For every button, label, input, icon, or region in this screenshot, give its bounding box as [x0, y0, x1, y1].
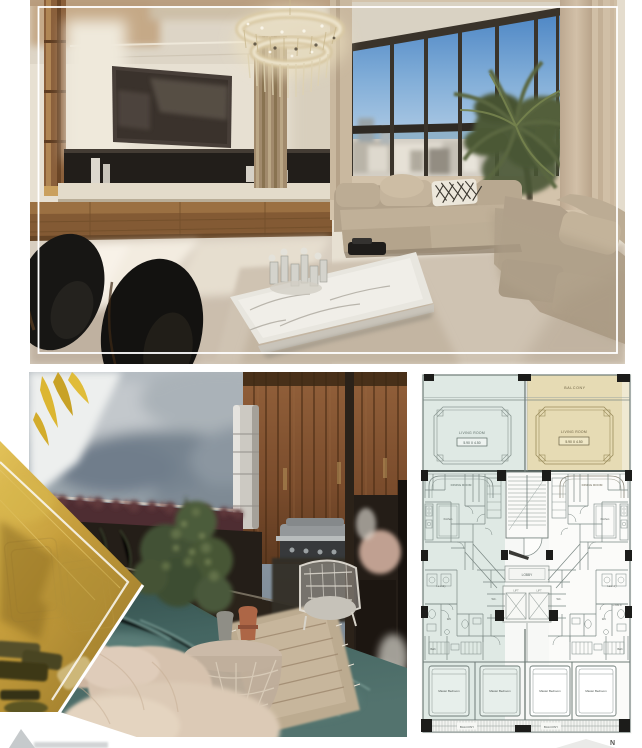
svg-text:WC: WC [602, 617, 606, 621]
svg-text:WC: WC [447, 617, 451, 621]
svg-text:Master Bedroom: Master Bedroom [585, 689, 607, 693]
svg-text:Kitchen: Kitchen [444, 517, 453, 521]
svg-text:LIFT: LIFT [513, 589, 519, 593]
svg-text:WC.: WC. [556, 597, 561, 601]
svg-text:DINING ROOM: DINING ROOM [451, 483, 472, 487]
svg-text:BALCONY: BALCONY [460, 725, 474, 729]
svg-text:5.90 X 4.50: 5.90 X 4.50 [463, 441, 480, 445]
svg-text:Kitchen: Kitchen [601, 517, 610, 521]
svg-text:5.90 X 4.50: 5.90 X 4.50 [565, 440, 582, 444]
svg-text:Bath: Bath [617, 647, 623, 651]
svg-text:+ 3.80 m: + 3.80 m [612, 604, 621, 607]
svg-text:Laundry: Laundry [436, 584, 446, 588]
svg-text:Master Bedroom: Master Bedroom [539, 689, 561, 693]
svg-text:BALCONY: BALCONY [564, 386, 585, 390]
svg-text:N: N [610, 740, 615, 747]
svg-text:Master Bedroom: Master Bedroom [438, 689, 460, 693]
svg-text:WC.: WC. [491, 597, 496, 601]
svg-text:LIVING ROOM: LIVING ROOM [561, 430, 587, 434]
svg-text:LOBBY: LOBBY [522, 573, 534, 577]
svg-text:BALCONY: BALCONY [544, 725, 558, 729]
svg-text:LIFT: LIFT [536, 589, 542, 593]
svg-text:DINING ROOM: DINING ROOM [582, 483, 603, 487]
svg-text:Bath: Bath [430, 647, 436, 651]
svg-text:Laundry: Laundry [607, 584, 617, 588]
svg-text:LIVING ROOM: LIVING ROOM [459, 431, 485, 435]
svg-text:Master Bedroom: Master Bedroom [489, 689, 511, 693]
